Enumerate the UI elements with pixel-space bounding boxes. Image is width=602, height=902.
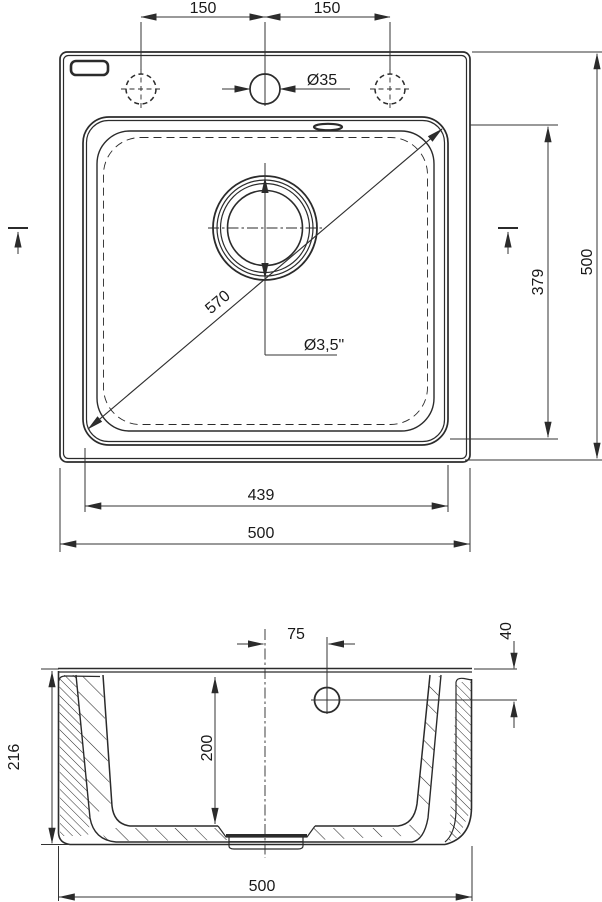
clip-mark-right [498,228,518,254]
sink-drawing-svg: 150 150 Ø35 [0,0,602,902]
bowl-height-label: 379 [530,269,547,296]
overall-height-label: 500 [579,249,596,276]
clip-mark-left [8,228,28,254]
faucet-hole-left [121,69,161,109]
dim-bowl-width: 439 [85,448,448,512]
diagonal-label: 570 [202,287,233,317]
logo-badge [71,61,108,75]
dim-bowl-depth: 200 [199,677,216,824]
bowl-width-label: 439 [248,487,275,504]
overall-width-label: 500 [248,525,275,542]
floor-hatch-right [310,821,426,840]
floor-hatch-left [100,828,228,841]
dim-overall-height: 500 [465,52,602,460]
dim-overall-width: 500 [60,468,470,552]
dim-faucet-hole-dia: Ø35 [222,72,350,89]
bowl-depth-label: 200 [199,735,216,762]
hole-drop-label: 40 [498,622,515,640]
right-wall-hatch [449,682,471,841]
faucet-hole-right [370,69,410,109]
dim-150-right-label: 150 [314,0,341,17]
drain-dia-label: Ø3,5" [304,337,344,354]
overflow-slot [314,124,342,130]
dim-hole-offset: 75 [237,626,355,644]
right-shell-hatch [418,676,440,814]
dim-150-left-label: 150 [190,0,217,17]
drain-recess [218,826,315,849]
section-view: 75 40 216 200 [6,622,517,901]
hole-offset-label: 75 [287,626,305,643]
overall-depth-label: 216 [6,744,23,771]
section-hole [311,637,517,714]
technical-drawing-page: 150 150 Ø35 [0,0,602,902]
dim-hole-spacing: 150 150 [141,0,390,106]
dim-hole-drop: 40 [474,622,517,728]
top-view: 150 150 Ø35 [8,0,602,552]
section-width-label: 500 [249,878,276,895]
faucet-hole-dia-label: Ø35 [307,72,337,89]
